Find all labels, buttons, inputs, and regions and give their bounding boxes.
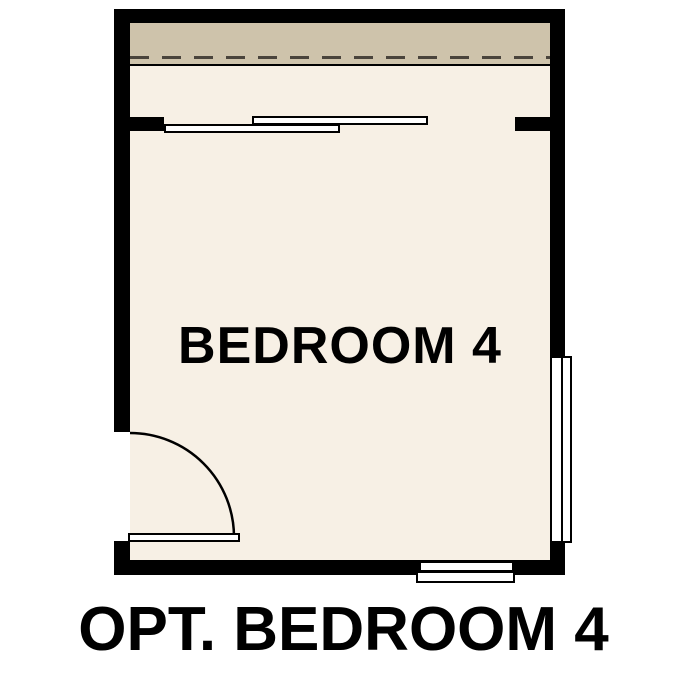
window-right [550, 356, 572, 543]
window-right-divider [561, 358, 563, 541]
room-floor [130, 23, 550, 560]
floor-plan: BEDROOM 4 OPT. BEDROOM 4 [0, 0, 687, 687]
plan-caption: OPT. BEDROOM 4 [0, 594, 687, 665]
closet-wall-right-stub [515, 117, 550, 131]
room-label: BEDROOM 4 [130, 316, 550, 376]
window-bottom-lower-pane [416, 571, 515, 583]
door-leaf [128, 533, 240, 542]
closet-dashed-line [130, 56, 550, 59]
closet-strip [130, 23, 550, 66]
closet-sliding-door-lower [164, 124, 340, 133]
wall-top [114, 9, 565, 23]
closet-wall-left-stub [130, 117, 164, 131]
wall-left-upper [114, 9, 130, 432]
